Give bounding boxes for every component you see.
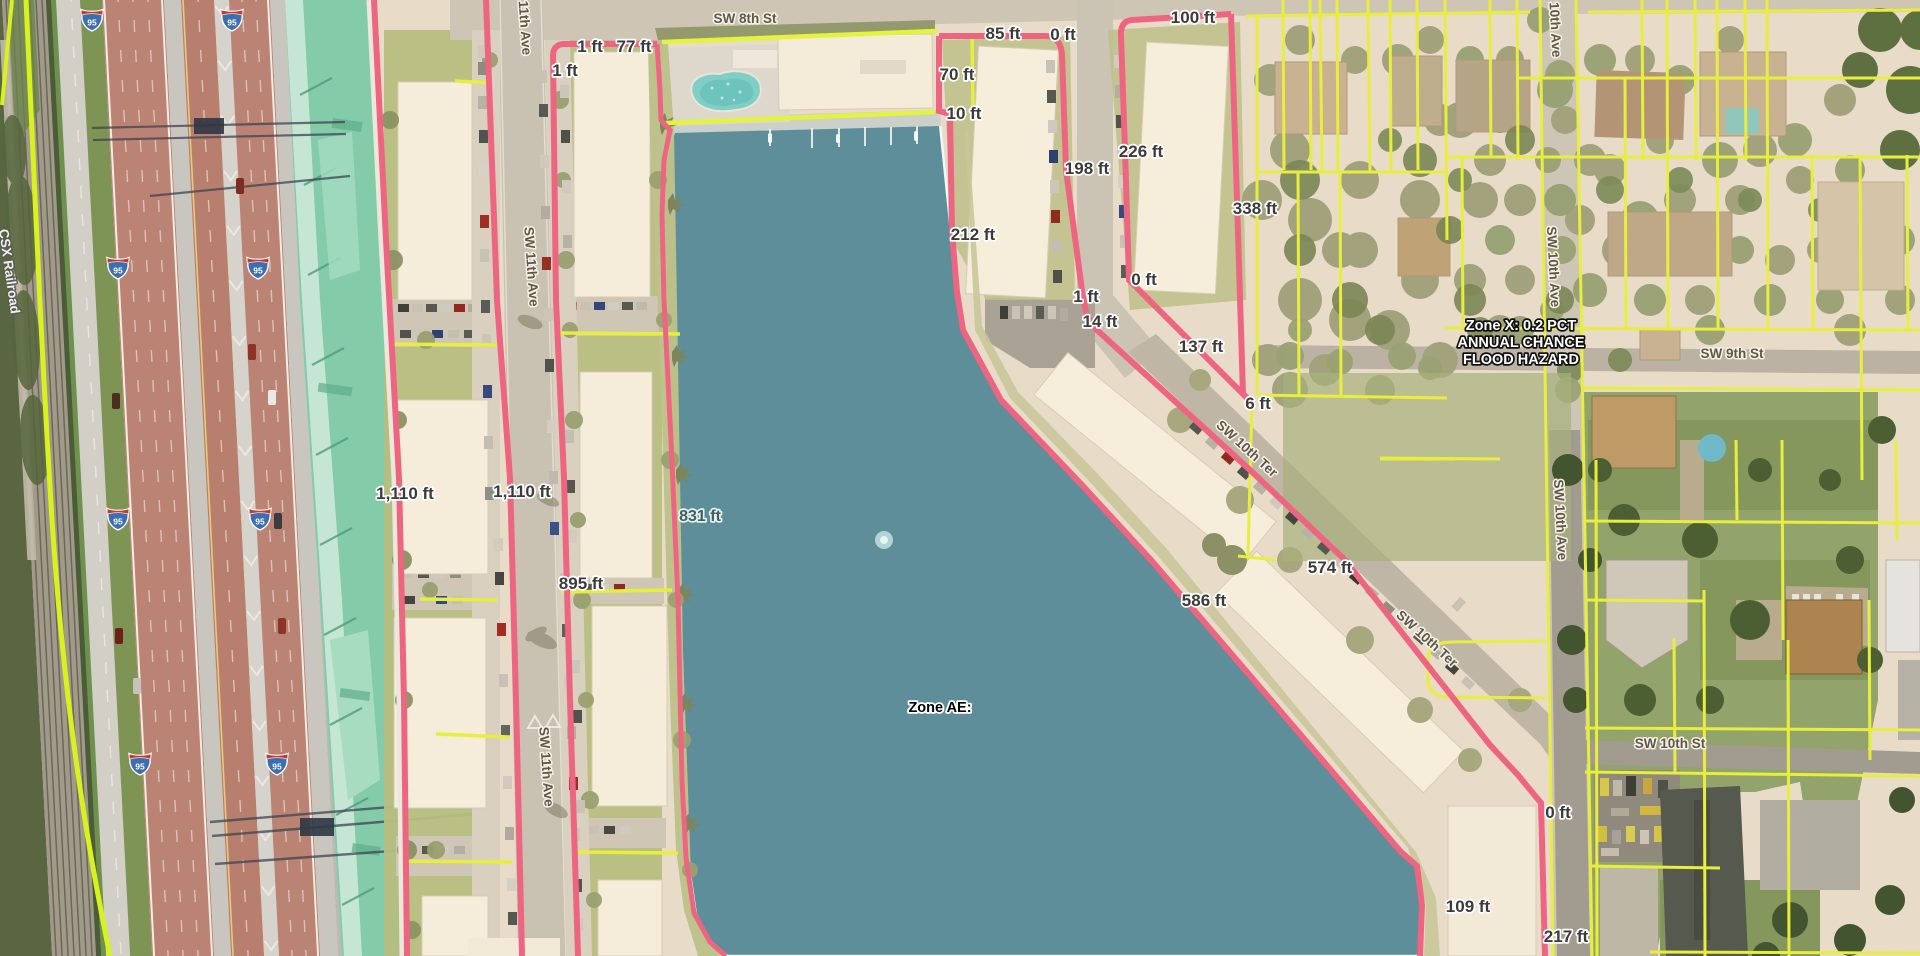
svg-text:ANNUAL CHANCE: ANNUAL CHANCE xyxy=(1457,335,1584,351)
svg-text:SW 10th St: SW 10th St xyxy=(1635,736,1706,751)
svg-text:10th Ave: 10th Ave xyxy=(1547,2,1565,58)
svg-text:0 ft: 0 ft xyxy=(1050,25,1076,44)
svg-text:100 ft: 100 ft xyxy=(1171,8,1216,27)
svg-text:1 ft: 1 ft xyxy=(1073,287,1099,306)
svg-text:6 ft: 6 ft xyxy=(1245,394,1271,413)
svg-text:1,110 ft: 1,110 ft xyxy=(493,482,551,501)
svg-text:226 ft: 226 ft xyxy=(1119,142,1164,161)
svg-text:77 ft: 77 ft xyxy=(617,37,652,56)
svg-text:0 ft: 0 ft xyxy=(1545,803,1571,822)
svg-text:831 ft: 831 ft xyxy=(679,508,721,525)
svg-text:137 ft: 137 ft xyxy=(1179,337,1224,356)
svg-text:85 ft: 85 ft xyxy=(986,24,1021,43)
svg-text:0 ft: 0 ft xyxy=(1131,270,1157,289)
svg-text:217 ft: 217 ft xyxy=(1544,927,1589,946)
svg-text:1,110 ft: 1,110 ft xyxy=(376,484,434,503)
svg-text:109 ft: 109 ft xyxy=(1446,897,1491,916)
svg-text:Zone X: 0.2 PCT: Zone X: 0.2 PCT xyxy=(1466,318,1577,334)
svg-text:FLOOD HAZARD: FLOOD HAZARD xyxy=(1463,352,1579,368)
svg-text:SW 9th St: SW 9th St xyxy=(1701,346,1765,361)
svg-text:Zone AE:: Zone AE: xyxy=(908,700,971,716)
svg-text:586 ft: 586 ft xyxy=(1182,591,1227,610)
svg-text:212 ft: 212 ft xyxy=(951,225,996,244)
svg-text:1 ft: 1 ft xyxy=(552,61,578,80)
svg-text:SW 8th St: SW 8th St xyxy=(714,11,778,26)
svg-text:10 ft: 10 ft xyxy=(947,104,982,123)
svg-text:574 ft: 574 ft xyxy=(1308,558,1353,577)
svg-text:338 ft: 338 ft xyxy=(1233,199,1278,218)
svg-text:198 ft: 198 ft xyxy=(1065,159,1110,178)
svg-text:14 ft: 14 ft xyxy=(1083,312,1118,331)
svg-text:895 ft: 895 ft xyxy=(559,574,604,593)
svg-text:1 ft: 1 ft xyxy=(577,37,603,56)
svg-text:70 ft: 70 ft xyxy=(940,65,975,84)
